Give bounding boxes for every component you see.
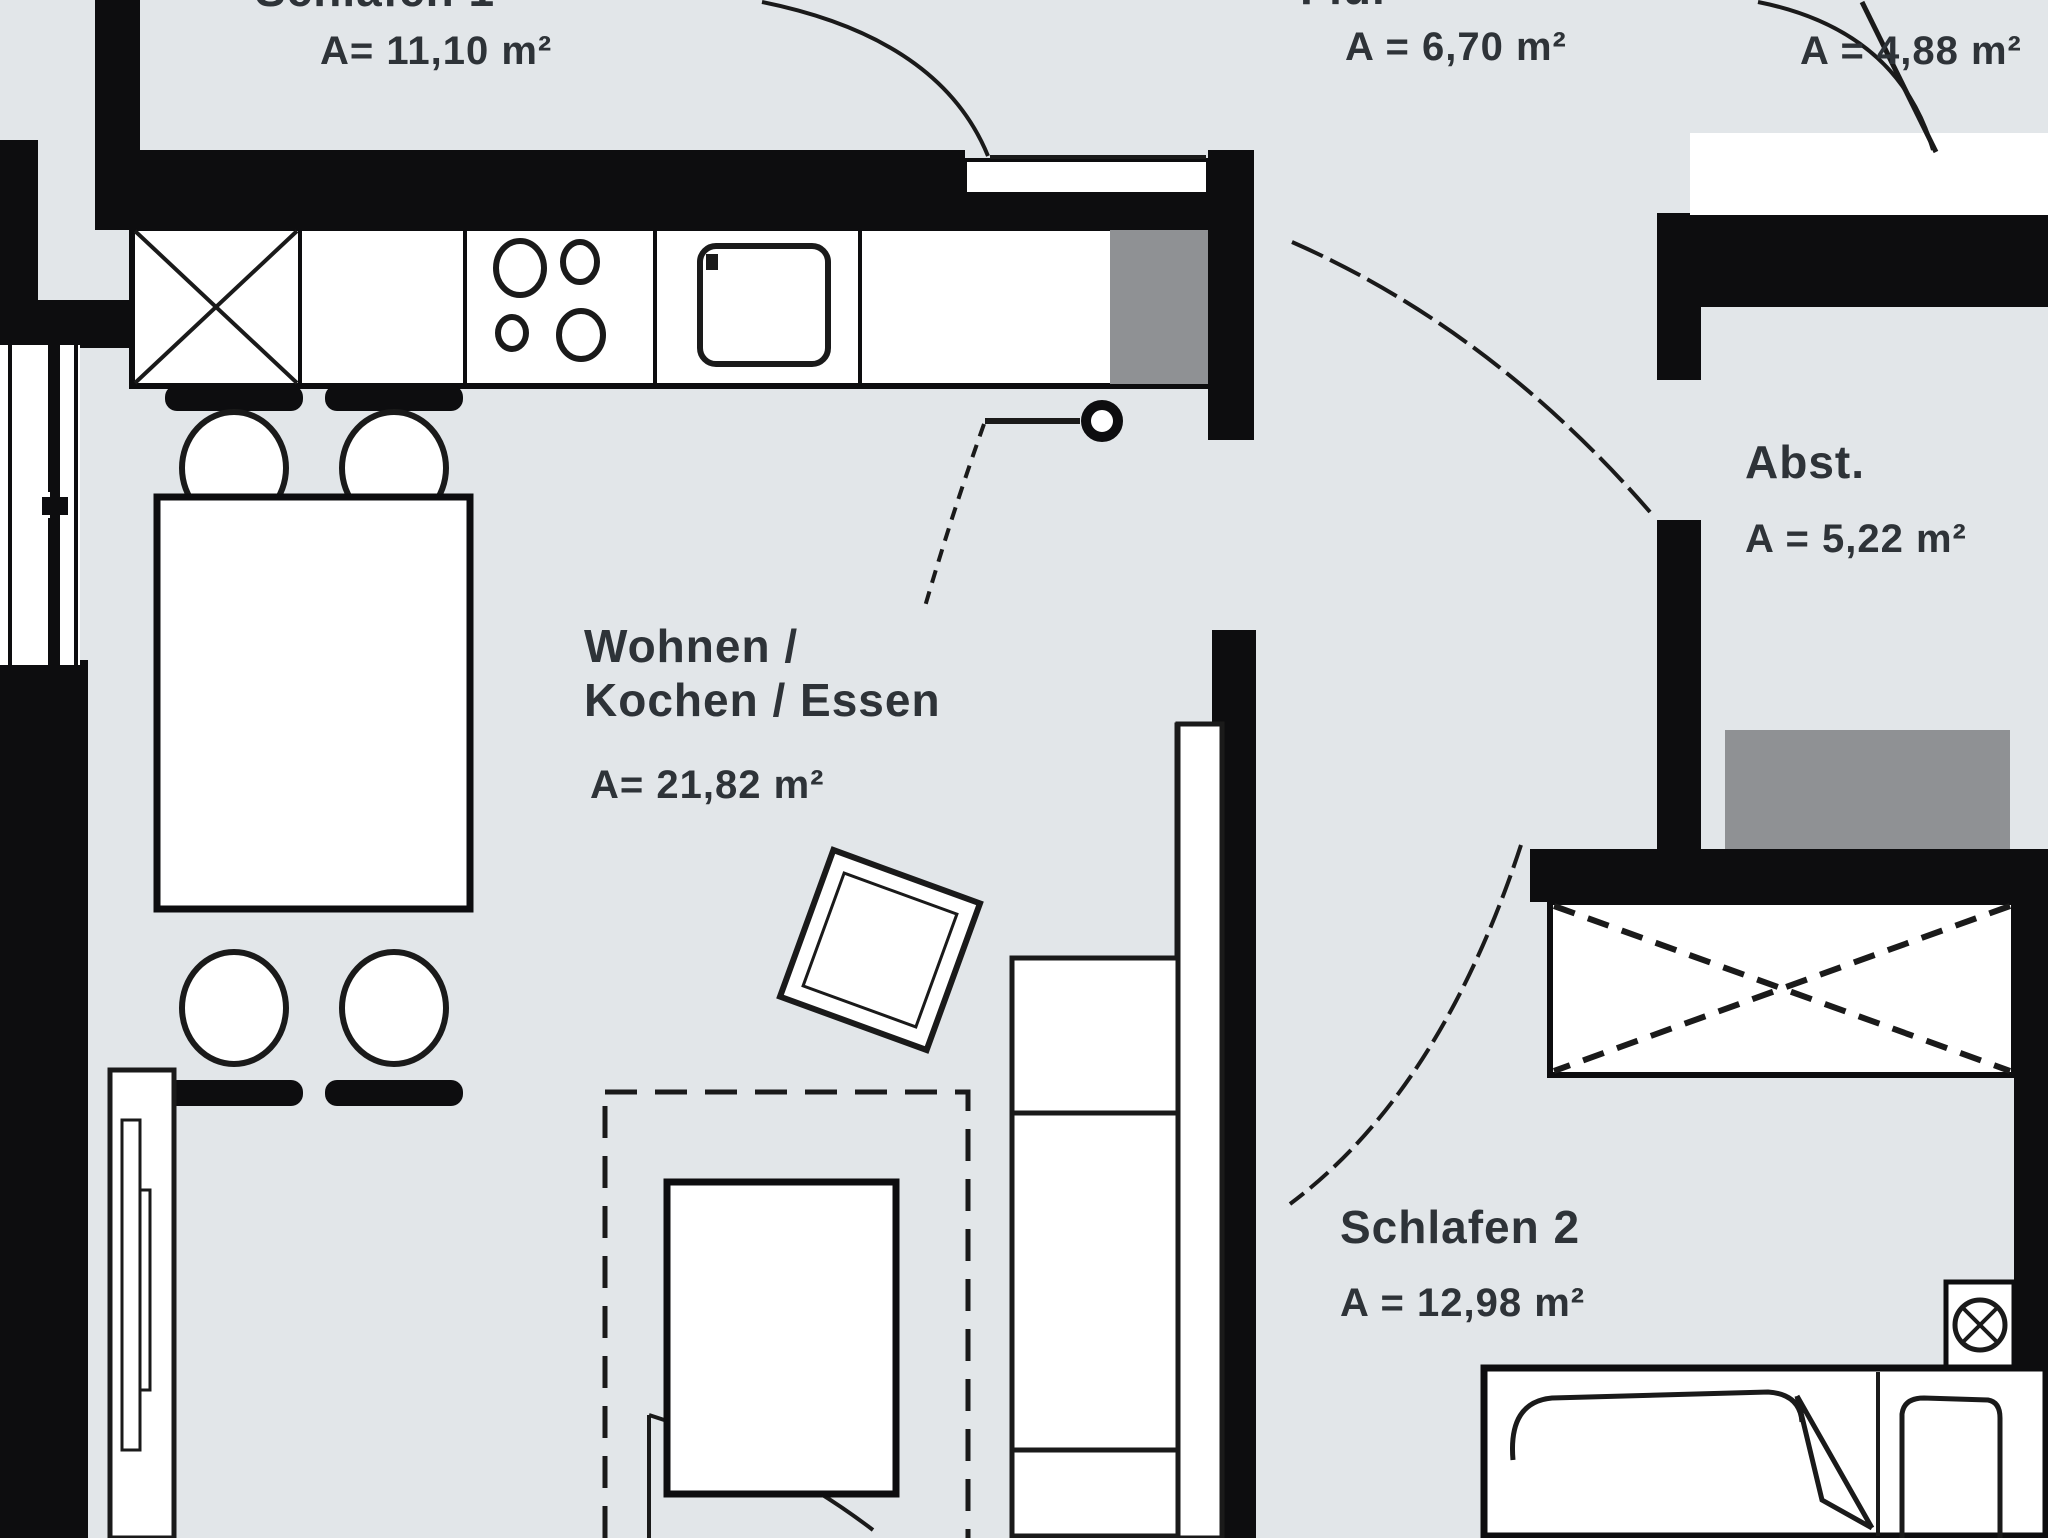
window-icon (0, 345, 80, 665)
chair (182, 952, 286, 1064)
sink-icon (700, 246, 828, 364)
wall-topright-horizontal (1690, 215, 2048, 307)
chair-back (165, 1080, 303, 1106)
sofa-backrest (1178, 724, 1222, 1538)
chair-back (325, 385, 463, 411)
sofa-cushion (1012, 1113, 1178, 1450)
chair-back (325, 1080, 463, 1106)
doorway-top-opening (965, 160, 1208, 194)
switch-symbol-icon (1946, 1282, 2014, 1368)
living-area-label: A= 21,82 m² (590, 763, 824, 807)
wall-kitchen-right (1208, 150, 1254, 440)
door-hinge-icon (1086, 405, 1118, 437)
topright-area-label: A = 4,88 m² (1800, 29, 2022, 73)
floor-plan-canvas: Schlafen 1 A= 11,10 m² Flur A = 6,70 m² … (0, 0, 2048, 1538)
wall-room1-left (95, 0, 140, 158)
doorway-topright-opening (1690, 133, 2048, 215)
bedroom2-name-label: Schlafen 2 (1340, 1201, 1580, 1253)
bedroom2-area-label: A = 12,98 m² (1340, 1281, 1585, 1325)
chair (342, 952, 446, 1064)
living-name-label-line1: Wohnen / (584, 620, 798, 672)
room1-area-label: A= 11,10 m² (320, 29, 552, 73)
kitchen-counter (132, 228, 1208, 386)
wall-room1-bottom (95, 150, 965, 230)
ottoman (667, 1182, 896, 1494)
storage-name-label: Abst. (1745, 436, 1865, 488)
sofa-section (1012, 958, 1178, 1113)
storage-area-label: A = 5,22 m² (1745, 517, 1967, 561)
corridor-name-label-clipped: Flur (1300, 0, 1391, 14)
storage-shelf-block (1725, 730, 2010, 849)
wall-storage-left-lower (1657, 520, 1701, 849)
wardrobe-icon (1550, 902, 2014, 1075)
sideboard (110, 1070, 174, 1538)
corridor-area-label: A = 6,70 m² (1345, 25, 1567, 69)
bed (1484, 1368, 2046, 1538)
wall-left-pier (0, 300, 132, 348)
living-name-label-line2: Kochen / Essen (584, 674, 941, 726)
dining-table (157, 497, 470, 909)
wall-storage-bedroom-divider (1530, 849, 2048, 902)
floor-plan: Schlafen 1 A= 11,10 m² Flur A = 6,70 m² … (0, 0, 2048, 1538)
room1-name-label-clipped: Schlafen 1 (255, 0, 495, 16)
wall-left-bottom (0, 660, 88, 1538)
chair-back (165, 385, 303, 411)
sofa-cushion (1012, 1450, 1178, 1536)
wall-doorway-sill (965, 194, 1208, 230)
counter-end-block (1110, 230, 1208, 384)
